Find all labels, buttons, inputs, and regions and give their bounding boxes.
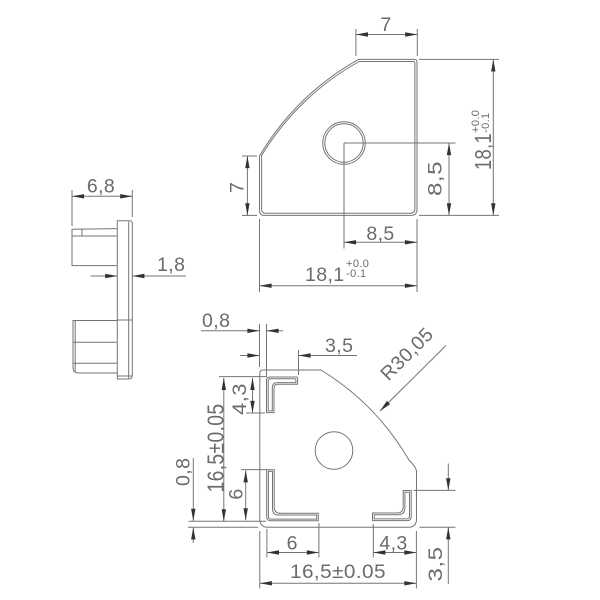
svg-text:6: 6 <box>226 488 248 499</box>
svg-text:7: 7 <box>227 182 249 193</box>
svg-text:1,8: 1,8 <box>157 254 185 276</box>
svg-text:8,5: 8,5 <box>366 223 394 245</box>
svg-text:4,3: 4,3 <box>379 533 407 555</box>
svg-text:18,1: 18,1 <box>305 264 345 286</box>
svg-text:3,5: 3,5 <box>325 335 353 357</box>
svg-text:8,5: 8,5 <box>425 161 447 196</box>
svg-text:6: 6 <box>287 533 298 555</box>
svg-text:6,8: 6,8 <box>87 176 115 198</box>
svg-text:-0.1: -0.1 <box>346 268 367 280</box>
svg-text:0,8: 0,8 <box>202 310 230 332</box>
svg-text:16,5±0.05: 16,5±0.05 <box>290 561 386 583</box>
svg-text:-0.1: -0.1 <box>480 112 492 133</box>
svg-text:4,3: 4,3 <box>229 383 251 415</box>
svg-text:7: 7 <box>380 14 391 36</box>
svg-text:R30,05: R30,05 <box>376 323 438 385</box>
svg-text:18,1: 18,1 <box>470 133 496 170</box>
svg-text:0,8: 0,8 <box>173 458 195 486</box>
svg-text:3,5: 3,5 <box>425 547 447 582</box>
svg-text:16,5±0.05: 16,5±0.05 <box>203 404 229 493</box>
